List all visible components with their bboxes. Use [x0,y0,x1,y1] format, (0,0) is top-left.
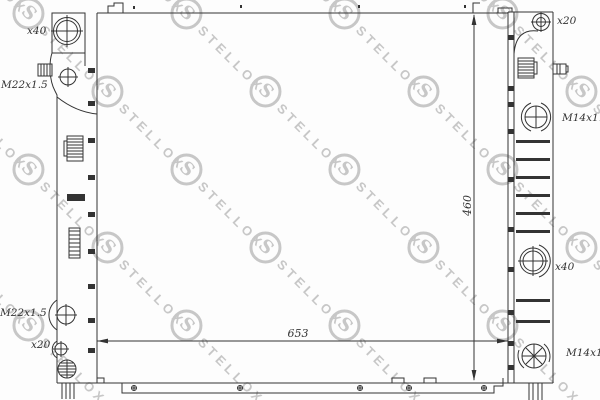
radiator-line-art [0,0,600,400]
right-tank-ribs [516,140,550,323]
right-corner-arc [514,31,538,54]
bottom-rail [97,378,503,393]
right-tank [508,12,568,400]
top-vent-mark [358,5,360,8]
top-vent-mark [240,5,242,8]
label-left-upper-thread: M22x1.5 [1,79,48,91]
right-x40-port [518,245,550,277]
rail-tab [424,378,436,383]
label-right-upper-thread: M14x1.5 [562,112,600,124]
top-vent-mark [133,6,135,9]
rail-tab [392,378,404,383]
label-left-top-diameter: x40 [27,25,46,37]
dimension-height-text: 460 [461,195,474,216]
top-mount-bracket-left [108,3,123,13]
right-ribbed-boss [518,58,537,78]
left-wall-tabs [88,68,95,353]
right-tank-pins [529,383,542,400]
left-tank-pins [62,383,74,399]
left-solid-bar [67,194,85,201]
right-stub-connector [553,64,568,74]
label-right-middle-diameter: x40 [555,261,574,273]
top-vent-mark [464,5,466,8]
core-outline [57,3,512,383]
radiator-technical-drawing: SSTELLOXSSTELLOXSSTELLOXSSTELLOXSSTELLOX… [0,0,600,400]
left-ribbed-block-lower [69,228,80,258]
label-left-lower-diameter: x20 [31,339,50,351]
top-mount-bracket-right [473,3,480,13]
right-lower-hex-fitting [518,344,550,368]
left-threaded-drain [58,360,76,378]
label-right-lower-thread: M14x1.5 [566,347,600,359]
right-wall-tabs [508,35,514,370]
label-left-lower-thread: M22x1.5 [0,307,47,319]
rail-bolt-marks [131,385,487,391]
label-right-top-diameter: x20 [557,15,576,27]
dimension-width-text: 653 [281,327,315,340]
right-upper-hex-fitting [521,103,550,131]
left-ribbed-block-upper [64,136,83,161]
